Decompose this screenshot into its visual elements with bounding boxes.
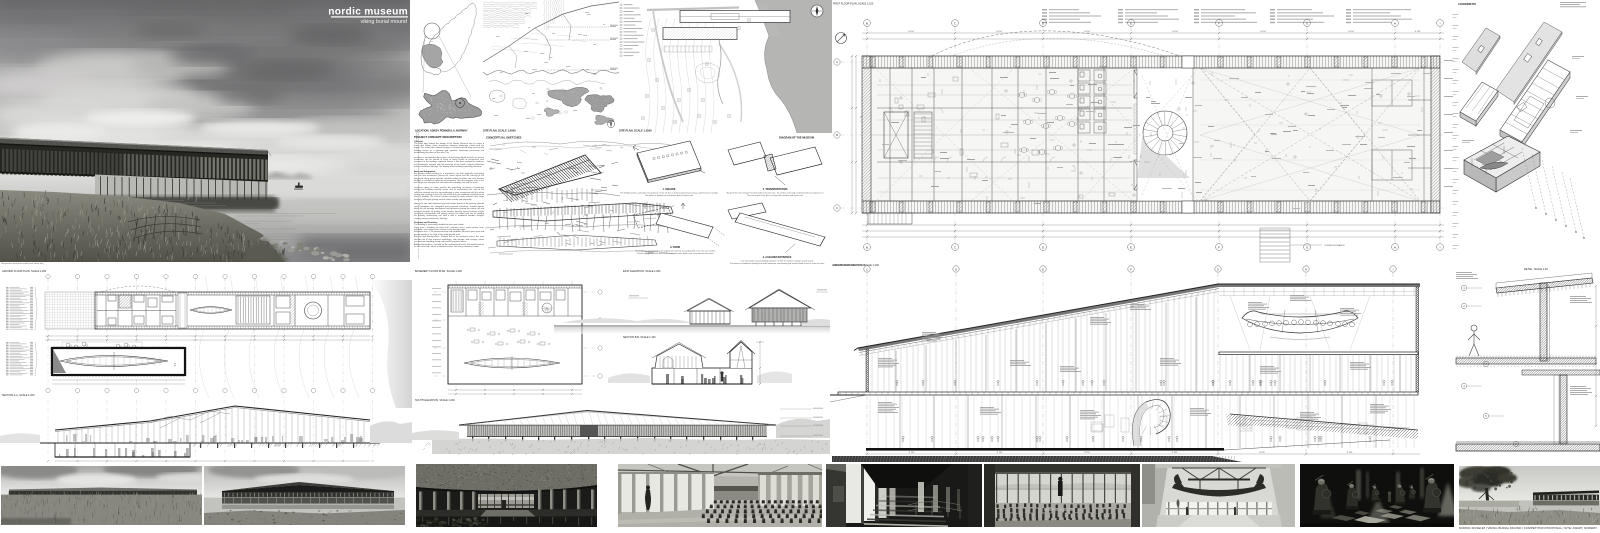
svg-text:G: G bbox=[1306, 245, 1309, 249]
svg-text:DETAIL, SCALE 1:20: DETAIL, SCALE 1:20 bbox=[1524, 268, 1548, 271]
svg-text:H: H bbox=[1394, 21, 1396, 25]
svg-text:E: E bbox=[1130, 21, 1132, 25]
svg-text:2: 2 bbox=[1463, 305, 1465, 308]
svg-text:8.750: 8.750 bbox=[1347, 452, 1353, 454]
svg-text:LONGITUDINAL SECTION, SCALE 1:: LONGITUDINAL SECTION, SCALE 1:100 bbox=[832, 264, 879, 267]
svg-text:H: H bbox=[1394, 245, 1396, 249]
svg-text:4. A HELDEN ENTRANCE: 4. A HELDEN ENTRANCE bbox=[763, 256, 792, 259]
svg-text:8.750: 8.750 bbox=[997, 452, 1003, 454]
svg-text:I: I bbox=[1440, 21, 1441, 25]
svg-text:4: 4 bbox=[1463, 385, 1465, 388]
svg-text:B: B bbox=[836, 133, 838, 137]
svg-text:B: B bbox=[866, 21, 868, 25]
svg-text:G: G bbox=[1217, 267, 1219, 271]
svg-text:8.750: 8.750 bbox=[1084, 31, 1090, 33]
svg-text:LOCATION: ASKØY PENINSULA, NOR: LOCATION: ASKØY PENINSULA, NORWAY bbox=[415, 129, 468, 133]
svg-text:SITE PLAN, SCALE 1:1000: SITE PLAN, SCALE 1:1000 bbox=[619, 129, 652, 133]
svg-text:I: I bbox=[1440, 245, 1441, 249]
svg-text:DIAGRAM OF THE MUSEUM: DIAGRAM OF THE MUSEUM bbox=[779, 136, 814, 140]
svg-text:D: D bbox=[1042, 245, 1045, 249]
svg-text:SITE PLAN, SCALE 1:5000: SITE PLAN, SCALE 1:5000 bbox=[483, 129, 516, 133]
svg-text:1. SQUARE: 1. SQUARE bbox=[663, 188, 676, 191]
svg-text:AXONOMETRI: AXONOMETRI bbox=[1458, 2, 1476, 6]
svg-text:C: C bbox=[866, 267, 868, 271]
svg-text:5: 5 bbox=[1485, 415, 1487, 418]
svg-text:A: A bbox=[836, 60, 838, 64]
svg-text:I: I bbox=[1393, 267, 1394, 271]
svg-text:E: E bbox=[1130, 245, 1132, 249]
svg-text:8.750: 8.750 bbox=[1348, 31, 1354, 33]
svg-text:C: C bbox=[836, 206, 838, 210]
svg-text:Creation of high approach from: Creation of high approach from land into… bbox=[637, 252, 714, 255]
svg-text:F: F bbox=[1218, 245, 1220, 249]
svg-text:FIRST FLOOR PLAN, SCALE 1:100: FIRST FLOOR PLAN, SCALE 1:100 bbox=[833, 3, 874, 6]
svg-text:GROUND FLOOR PLAN, SCALE 1:200: GROUND FLOOR PLAN, SCALE 1:200 bbox=[2, 270, 47, 273]
svg-text:D: D bbox=[955, 267, 957, 271]
svg-text:EAST ELEVATION, SCALE 1:200: EAST ELEVATION, SCALE 1:200 bbox=[623, 270, 661, 273]
svg-text:H: H bbox=[1305, 267, 1307, 271]
svg-text:8.750: 8.750 bbox=[908, 31, 914, 33]
svg-text:F: F bbox=[1218, 21, 1220, 25]
svg-text:8.750: 8.750 bbox=[1172, 31, 1178, 33]
svg-text:2. TRANSPORTATION: 2. TRANSPORTATION bbox=[763, 188, 788, 191]
svg-text:8.750: 8.750 bbox=[1260, 31, 1266, 33]
svg-text:8.750: 8.750 bbox=[996, 31, 1002, 33]
svg-text:SECTION A-A, SCALE 1:200: SECTION A-A, SCALE 1:200 bbox=[2, 394, 35, 397]
svg-text:SECTION B-B, SCALE 1:100: SECTION B-B, SCALE 1:100 bbox=[623, 336, 656, 339]
svg-text:8.750: 8.750 bbox=[1172, 452, 1178, 454]
svg-text:viking burial mound: viking burial mound bbox=[361, 19, 407, 25]
svg-text:BASEMENT FLOOR PLAN, SCALE 1:2: BASEMENT FLOOR PLAN, SCALE 1:200 bbox=[415, 270, 462, 273]
svg-text:nordic museum: nordic museum bbox=[328, 7, 408, 18]
svg-text:The entrance condition for loo: The entrance condition for looking from … bbox=[730, 262, 825, 265]
svg-text:F: F bbox=[1130, 267, 1132, 271]
svg-text:CONCEPTUAL SKETCHES: CONCEPTUAL SKETCHES bbox=[486, 136, 522, 140]
svg-text:SOUTH ELEVATION, SCALE 1:200: SOUTH ELEVATION, SCALE 1:200 bbox=[415, 399, 455, 402]
svg-text:13: 13 bbox=[173, 363, 177, 367]
svg-text:8.750: 8.750 bbox=[1084, 452, 1090, 454]
svg-text:LOWER ENTRANCE: LOWER ENTRANCE bbox=[1324, 244, 1345, 247]
svg-text:8.750: 8.750 bbox=[1415, 31, 1421, 33]
svg-text:E: E bbox=[1042, 267, 1044, 271]
svg-text:C: C bbox=[954, 21, 957, 25]
svg-text:The central part of the lines: The central part of the lines is shaped … bbox=[747, 194, 804, 197]
svg-text:8.750: 8.750 bbox=[909, 452, 915, 454]
svg-text:1: 1 bbox=[1463, 287, 1465, 290]
svg-text:8.750: 8.750 bbox=[1259, 452, 1265, 454]
svg-text:3. FORM: 3. FORM bbox=[670, 246, 680, 249]
svg-text:C: C bbox=[954, 245, 957, 249]
svg-text:The square is divided into two: The square is divided into two distinct … bbox=[645, 194, 693, 197]
svg-text:B: B bbox=[866, 245, 868, 249]
